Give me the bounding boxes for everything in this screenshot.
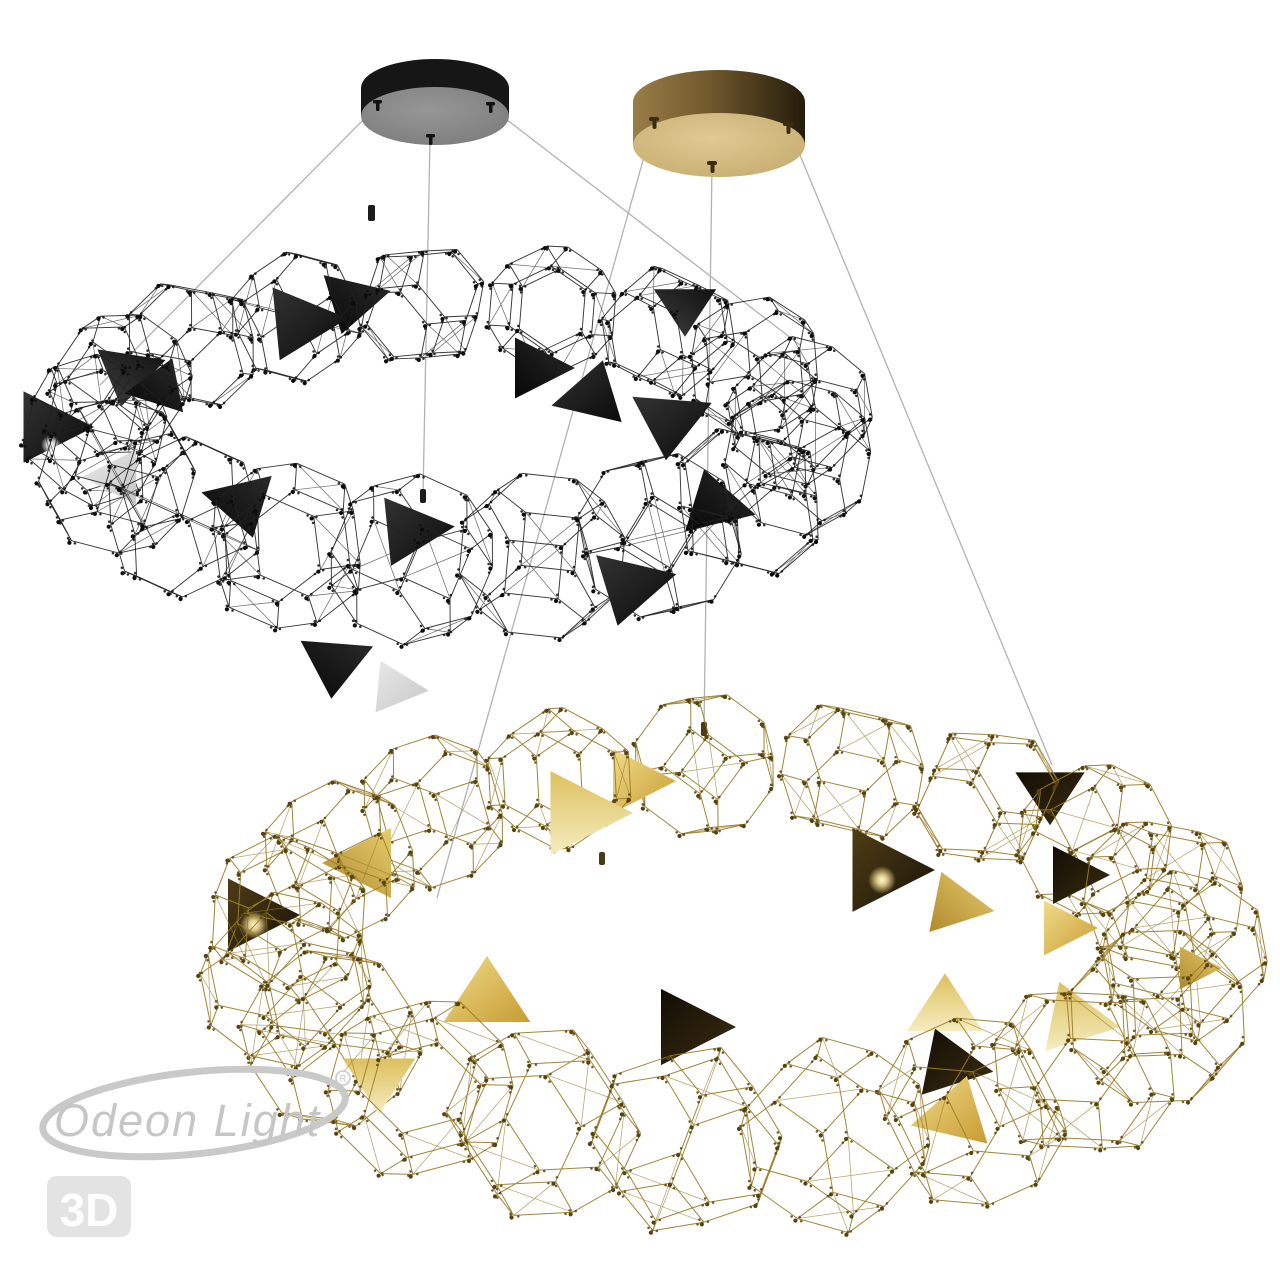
svg-text:R: R — [340, 1074, 347, 1084]
svg-text:Odeon Light: Odeon Light — [54, 1095, 322, 1146]
svg-text:3D: 3D — [60, 1184, 119, 1236]
